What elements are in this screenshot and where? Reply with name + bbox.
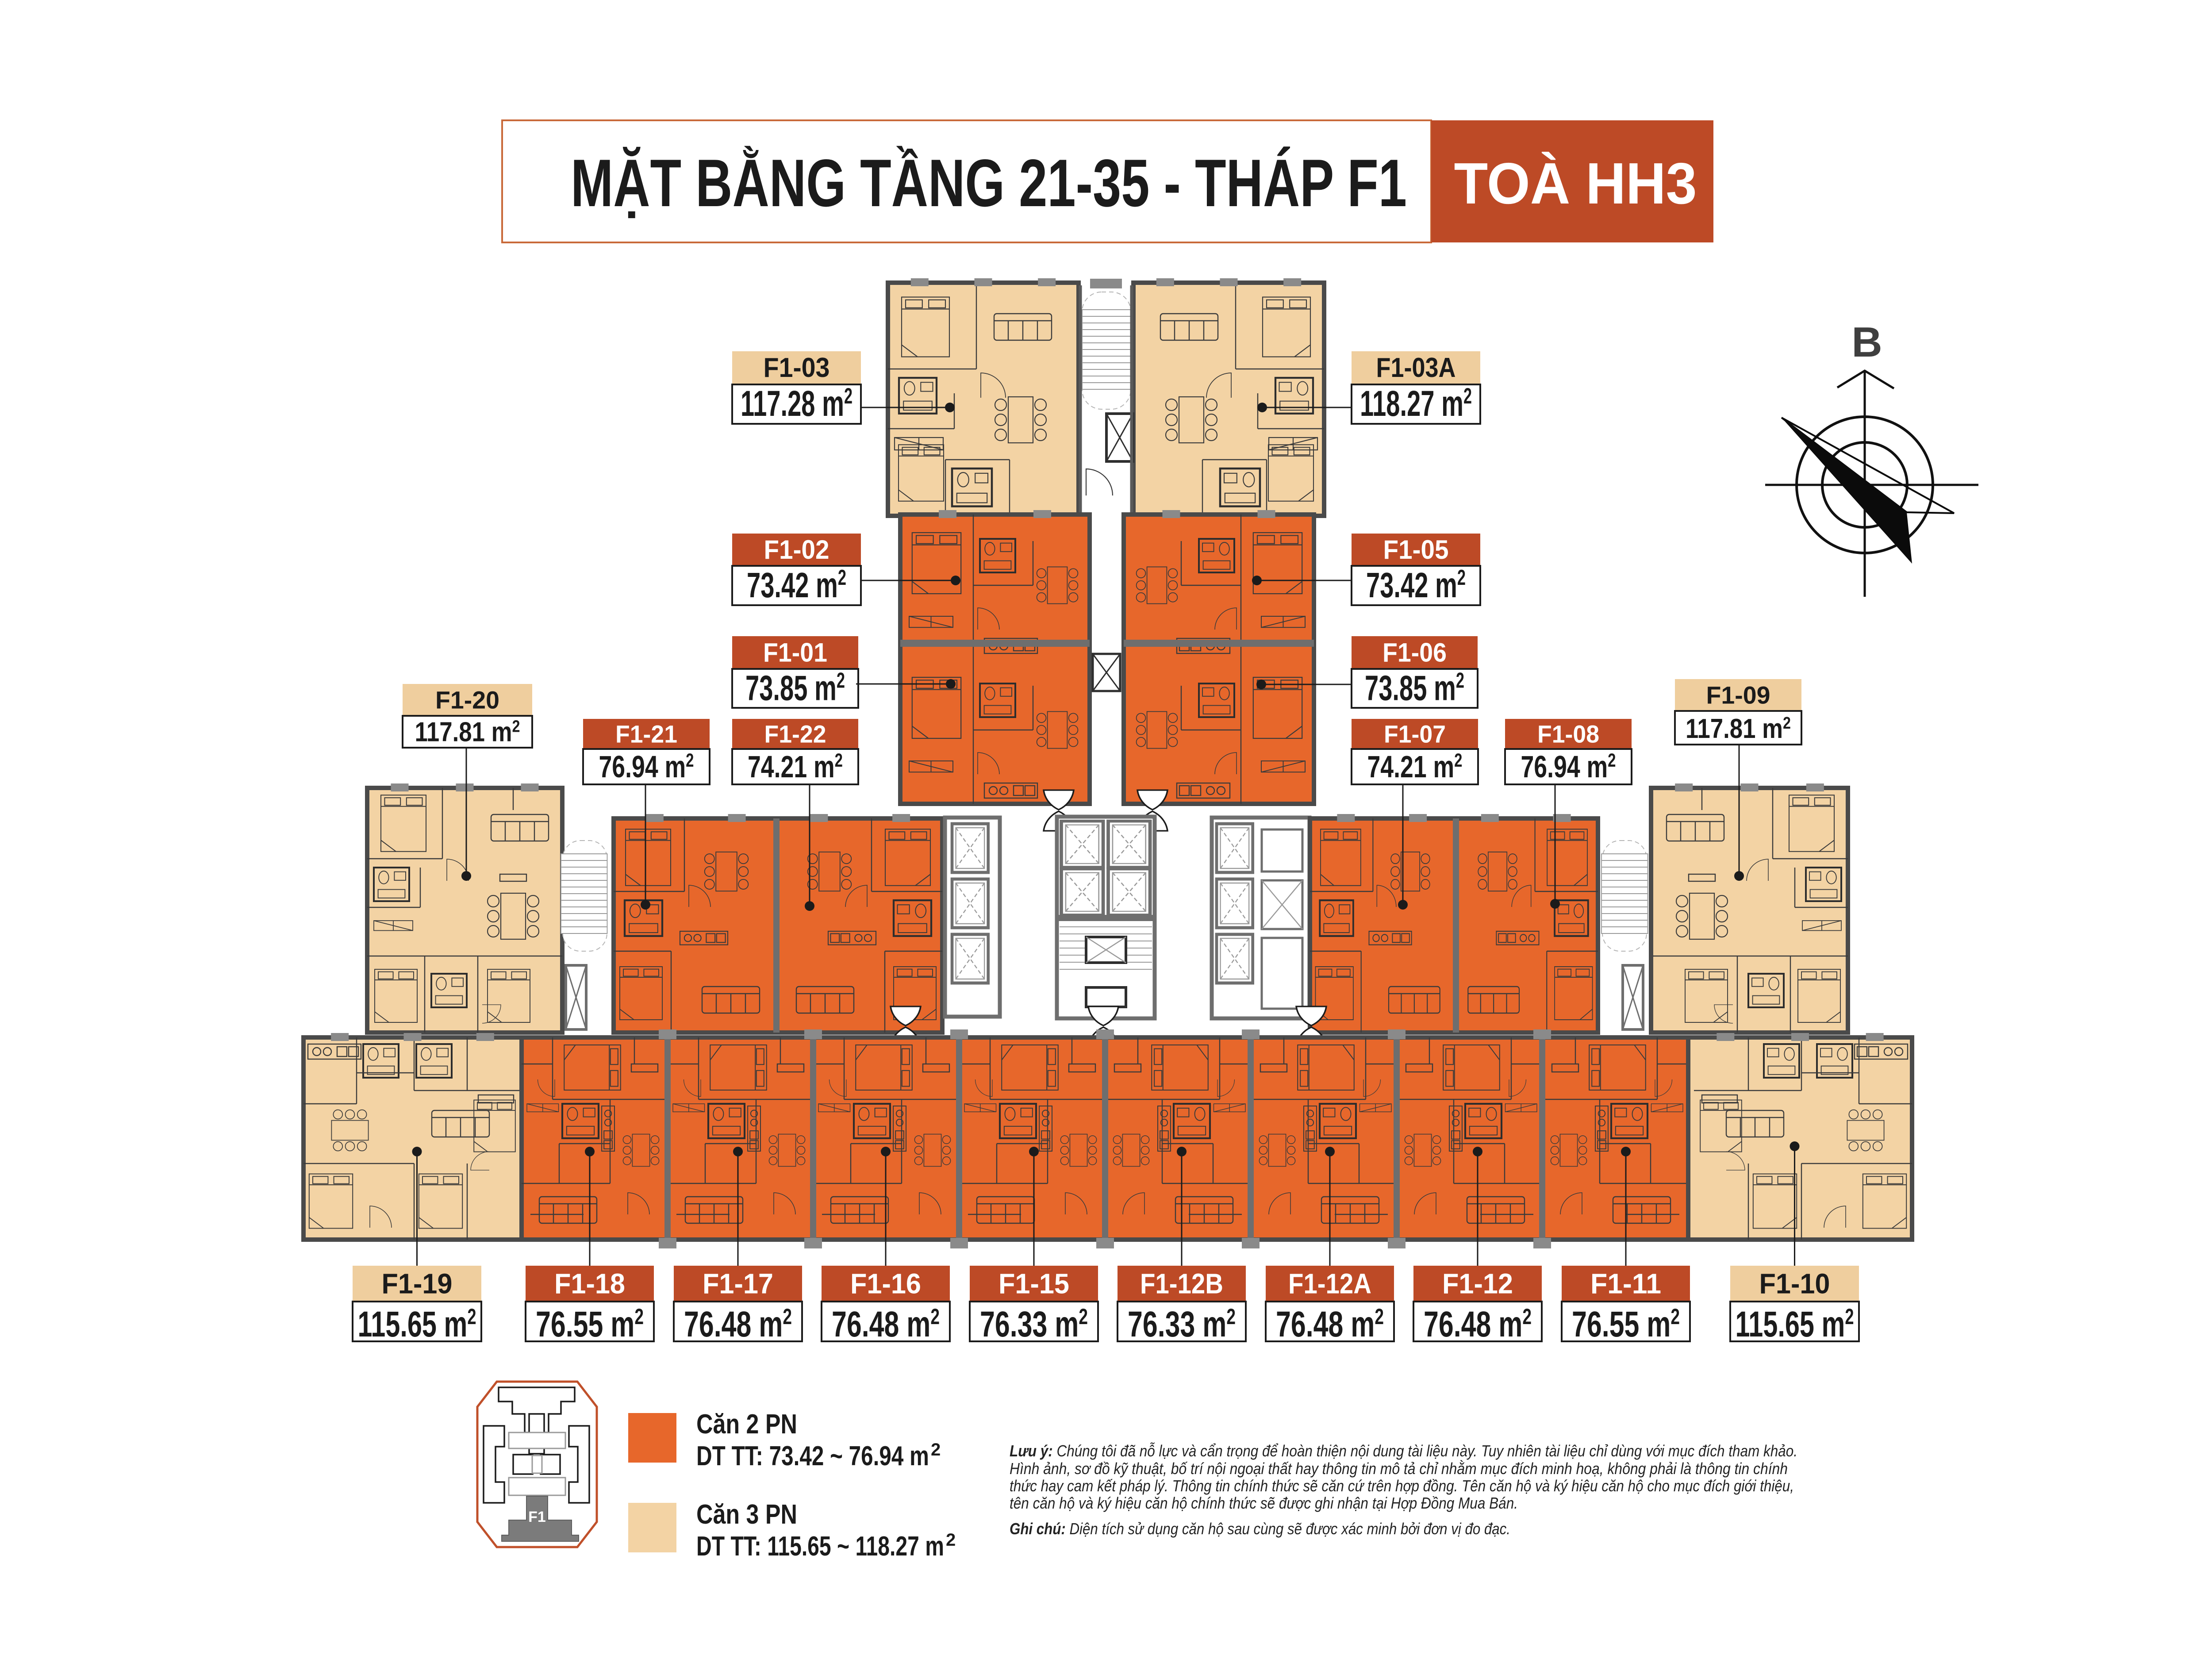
svg-text:Căn 3 PN: Căn 3 PN — [696, 1499, 797, 1530]
svg-text:F1-20: F1-20 — [435, 686, 499, 714]
svg-text:2: 2 — [946, 1530, 956, 1550]
svg-text:F1-18: F1-18 — [554, 1268, 625, 1300]
svg-text:DT TT: 73.42 ~ 76.94 m: DT TT: 73.42 ~ 76.94 m — [696, 1441, 929, 1471]
svg-text:74.21 m2: 74.21 m2 — [1367, 749, 1463, 784]
svg-text:F1: F1 — [528, 1509, 546, 1525]
svg-text:F1-05: F1-05 — [1383, 535, 1449, 565]
svg-text:76.33 m2: 76.33 m2 — [1128, 1304, 1236, 1344]
svg-text:F1-02: F1-02 — [764, 535, 829, 565]
svg-text:F1-12A: F1-12A — [1288, 1268, 1371, 1300]
svg-text:73.42 m2: 73.42 m2 — [1366, 565, 1466, 605]
svg-text:F1-15: F1-15 — [998, 1268, 1069, 1300]
svg-text:115.65 m2: 115.65 m2 — [358, 1304, 476, 1344]
svg-text:74.21 m2: 74.21 m2 — [748, 749, 843, 784]
svg-text:76.94 m2: 76.94 m2 — [1521, 749, 1616, 784]
svg-text:Căn 2 PN: Căn 2 PN — [696, 1409, 797, 1440]
svg-text:F1-08: F1-08 — [1537, 720, 1599, 748]
svg-text:76.33 m2: 76.33 m2 — [980, 1304, 1088, 1344]
svg-text:F1-03A: F1-03A — [1376, 353, 1456, 383]
svg-text:F1-19: F1-19 — [382, 1268, 453, 1300]
svg-text:tên căn hộ và ký hiệu căn hộ c: tên căn hộ và ký hiệu căn hộ chính thức … — [1010, 1494, 1518, 1512]
svg-text:118.27 m2: 118.27 m2 — [1360, 384, 1472, 424]
svg-text:76.48 m2: 76.48 m2 — [684, 1304, 792, 1344]
svg-text:76.48 m2: 76.48 m2 — [1424, 1304, 1532, 1344]
svg-text:76.48 m2: 76.48 m2 — [832, 1304, 940, 1344]
svg-text:73.85 m2: 73.85 m2 — [745, 668, 845, 707]
svg-text:F1-09: F1-09 — [1706, 681, 1770, 709]
svg-text:F1-01: F1-01 — [763, 638, 827, 668]
svg-text:Lưu ý: Chúng tôi đã nỗ lực và: Lưu ý: Chúng tôi đã nỗ lực và cẩn trọng … — [1010, 1442, 1797, 1460]
svg-text:DT TT: 115.65 ~ 118.27 m: DT TT: 115.65 ~ 118.27 m — [696, 1531, 944, 1562]
svg-text:2: 2 — [931, 1440, 941, 1459]
svg-text:73.85 m2: 73.85 m2 — [1365, 668, 1464, 707]
svg-text:B: B — [1851, 319, 1882, 366]
svg-text:117.81 m2: 117.81 m2 — [415, 717, 520, 748]
svg-text:F1-22: F1-22 — [764, 720, 826, 748]
svg-text:Hình ảnh, sơ đồ kỹ thuật, bố t: Hình ảnh, sơ đồ kỹ thuật, bố trí nội ngo… — [1010, 1459, 1788, 1478]
svg-text:MẶT BẰNG TẦNG 21-35 - THÁP F1: MẶT BẰNG TẦNG 21-35 - THÁP F1 — [571, 146, 1407, 221]
svg-text:F1-21: F1-21 — [615, 720, 677, 748]
svg-text:F1-16: F1-16 — [850, 1268, 921, 1300]
svg-text:TOÀ HH3: TOÀ HH3 — [1454, 151, 1697, 216]
svg-text:76.94 m2: 76.94 m2 — [599, 749, 694, 784]
svg-text:Ghi chú: Diện tích sử dụng căn: Ghi chú: Diện tích sử dụng căn hộ sau cù… — [1010, 1520, 1510, 1538]
svg-text:73.42 m2: 73.42 m2 — [747, 565, 846, 605]
svg-text:F1-10: F1-10 — [1759, 1268, 1830, 1300]
svg-text:76.48 m2: 76.48 m2 — [1276, 1304, 1384, 1344]
svg-text:117.81 m2: 117.81 m2 — [1686, 714, 1791, 744]
svg-text:F1-17: F1-17 — [703, 1268, 773, 1300]
svg-text:F1-03: F1-03 — [764, 353, 830, 383]
svg-text:F1-12: F1-12 — [1442, 1268, 1513, 1300]
svg-text:117.28 m2: 117.28 m2 — [741, 384, 853, 424]
svg-text:thức hay cam kết pháp lý. Thôn: thức hay cam kết pháp lý. Thông tin chín… — [1010, 1477, 1794, 1495]
svg-text:76.55 m2: 76.55 m2 — [536, 1304, 644, 1344]
svg-text:F1-11: F1-11 — [1590, 1268, 1661, 1300]
svg-text:76.55 m2: 76.55 m2 — [1572, 1304, 1680, 1344]
svg-text:F1-12B: F1-12B — [1140, 1268, 1223, 1300]
svg-text:F1-07: F1-07 — [1384, 720, 1446, 748]
svg-text:F1-06: F1-06 — [1382, 638, 1447, 668]
svg-text:115.65 m2: 115.65 m2 — [1736, 1304, 1854, 1344]
